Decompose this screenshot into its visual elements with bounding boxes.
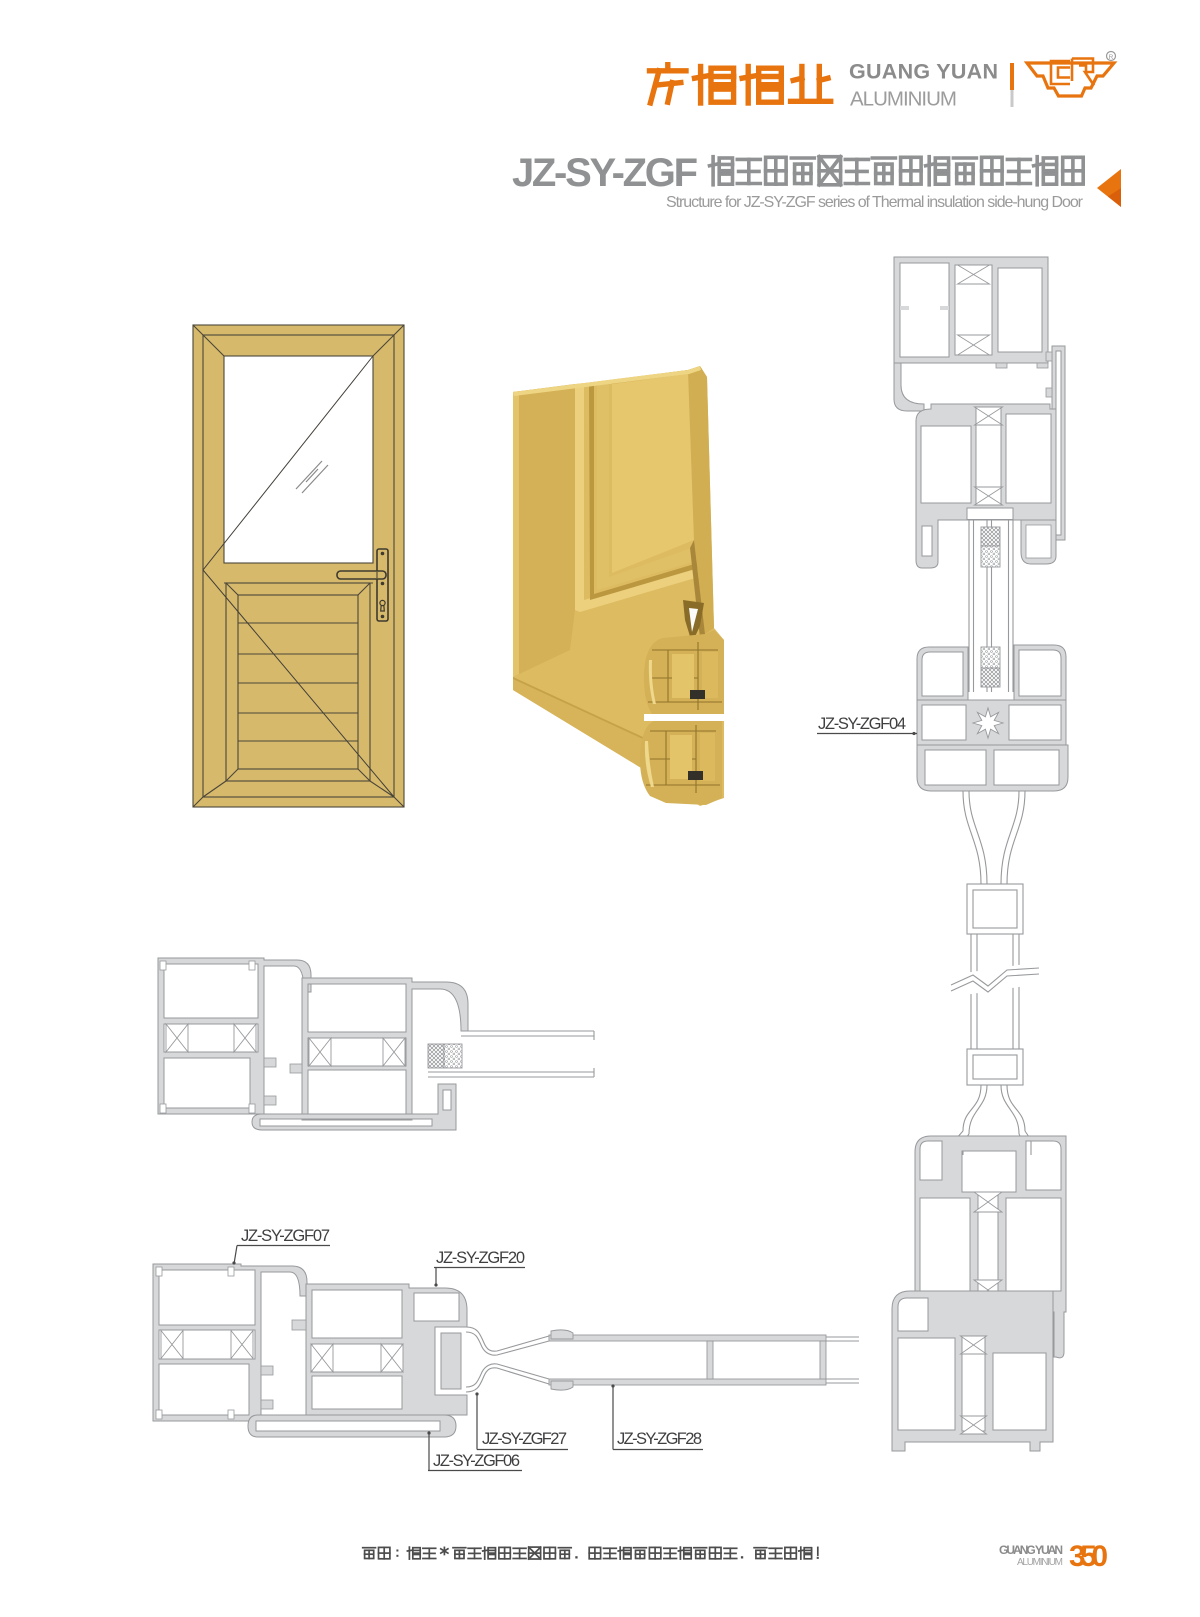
svg-text:R: R	[1109, 54, 1114, 61]
svg-text:JZ-SY-ZGF27: JZ-SY-ZGF27	[482, 1430, 567, 1448]
svg-text:JZ-SY-ZGF06: JZ-SY-ZGF06	[433, 1452, 520, 1470]
svg-text:JZ-SY-ZGF28: JZ-SY-ZGF28	[617, 1430, 702, 1448]
svg-text:350: 350	[1069, 1540, 1108, 1573]
svg-text:JZ-SY-ZGF07: JZ-SY-ZGF07	[241, 1227, 330, 1245]
svg-text:GUANG YUAN: GUANG YUAN	[849, 60, 998, 84]
svg-text:Structure for JZ-SY-ZGF series: Structure for JZ-SY-ZGF series of Therma…	[666, 194, 1084, 211]
svg-text:ALUMINIUM: ALUMINIUM	[850, 88, 957, 111]
svg-text:JZ-SY-ZGF04: JZ-SY-ZGF04	[818, 715, 906, 733]
svg-text:ALUMINIUM: ALUMINIUM	[1017, 1557, 1063, 1568]
svg-text:JZ-SY-ZGF: JZ-SY-ZGF	[512, 151, 698, 195]
svg-text:GUANG YUAN: GUANG YUAN	[999, 1543, 1063, 1557]
svg-text:JZ-SY-ZGF20: JZ-SY-ZGF20	[436, 1249, 525, 1267]
